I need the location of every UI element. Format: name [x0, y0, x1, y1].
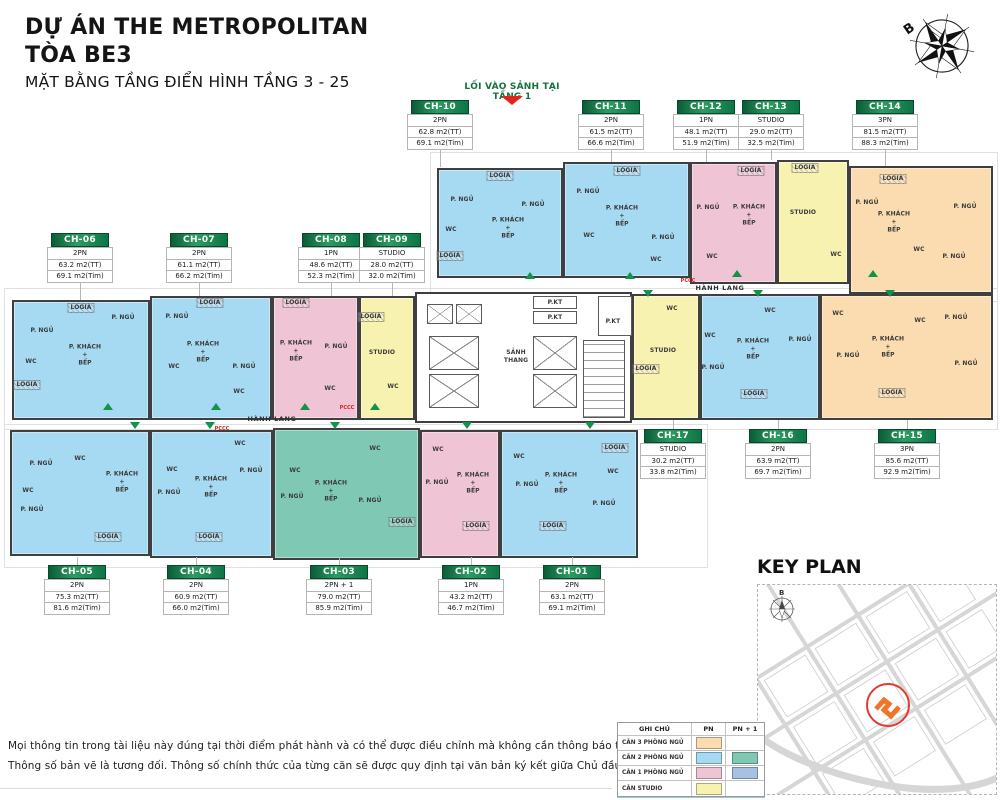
- vent-triangle-icon: [753, 290, 763, 297]
- unit-card-CH-07: CH-072PN61.1 m2(TT)66.2 m2(Tim): [166, 233, 232, 283]
- room-label: P. NGỦ: [576, 188, 599, 196]
- vent-triangle-icon: [585, 422, 595, 429]
- legend-row: CĂN STUDIO: [618, 781, 764, 796]
- room-label: LOGIA: [357, 312, 384, 322]
- elevator-box: [429, 336, 479, 370]
- vent-triangle-icon: [885, 290, 895, 297]
- vent-triangle-icon: [300, 403, 310, 410]
- card-connector-line: [907, 420, 908, 429]
- color-swatch: [696, 783, 722, 795]
- card-connector-line: [572, 557, 573, 565]
- unit-card-area-tim: 69.1 m2(Tim): [47, 271, 113, 283]
- unit-card-area-tt: 30.2 m2(TT): [640, 456, 706, 468]
- room-label: WC: [168, 363, 179, 371]
- unit-card-title: CH-13: [742, 100, 800, 114]
- legend-row-label: CĂN 3 PHÒNG NGỦ: [618, 736, 692, 751]
- room-label: WC: [914, 317, 925, 325]
- unit-card-type: 3PN: [874, 443, 940, 456]
- vent-triangle-icon: [130, 422, 140, 429]
- unit-card-type: 2PN + 1: [306, 579, 372, 592]
- room-label: P. NGỦ: [239, 467, 262, 475]
- vent-triangle-icon: [525, 272, 535, 279]
- unit-card-title: CH-04: [167, 565, 225, 579]
- room-label: WC: [650, 256, 661, 264]
- room-label: LOGIA: [462, 521, 489, 531]
- unit-card-area-tt: 60.9 m2(TT): [163, 592, 229, 604]
- legend-cell-pn1: [726, 736, 764, 751]
- room-label: P. NGỦ: [29, 460, 52, 468]
- unit-card-area-tim: 69.1 m2(Tim): [539, 603, 605, 615]
- unit-card-area-tim: 66.2 m2(Tim): [166, 271, 232, 283]
- room-label: WC: [233, 388, 244, 396]
- room-label: P. NGỦ: [425, 479, 448, 487]
- unit-card-type: STUDIO: [640, 443, 706, 456]
- room-label: P. KHÁCH + BẾP: [69, 343, 101, 366]
- unit-card-CH-04: CH-042PN60.9 m2(TT)66.0 m2(Tim): [163, 565, 229, 615]
- core-label: P.KT: [548, 314, 563, 322]
- room-label: LOGIA: [740, 389, 767, 399]
- unit-card-CH-03: CH-032PN + 179.0 m2(TT)85.9 m2(Tim): [306, 565, 372, 615]
- unit-CH-13: [777, 160, 849, 284]
- room-label: P. NGỦ: [942, 253, 965, 261]
- card-connector-line: [77, 557, 78, 565]
- disclaimer-line-1: Mọi thông tin trong tài liệu này đúng tạ…: [8, 740, 646, 752]
- elevator-box: [429, 374, 479, 408]
- unit-card-area-tim: 92.9 m2(Tim): [874, 467, 940, 479]
- room-label: P. NGỦ: [358, 497, 381, 505]
- key-plan-map: B: [758, 585, 996, 794]
- unit-card-CH-08: CH-081PN48.6 m2(TT)52.3 m2(Tim): [298, 233, 364, 283]
- unit-card-area-tt: 62.8 m2(TT): [407, 127, 473, 139]
- corridor-label: HÀNH LANG: [248, 415, 297, 423]
- room-label: WC: [166, 466, 177, 474]
- unit-card-area-tim: 46.7 m2(Tim): [438, 603, 504, 615]
- unit-card-CH-15: CH-153PN85.6 m2(TT)92.9 m2(Tim): [874, 429, 940, 479]
- unit-card-area-tim: 69.7 m2(Tim): [745, 467, 811, 479]
- unit-card-title: CH-06: [51, 233, 109, 247]
- legend-row-label: CĂN STUDIO: [618, 781, 692, 796]
- room-label: P. NGỦ: [324, 343, 347, 351]
- room-label: WC: [234, 440, 245, 448]
- vent-triangle-icon: [868, 270, 878, 277]
- elevator-box: [427, 304, 453, 324]
- room-label: P. KHÁCH + BẾP: [545, 471, 577, 494]
- unit-card-CH-02: CH-021PN43.2 m2(TT)46.7 m2(Tim): [438, 565, 504, 615]
- color-swatch: [696, 737, 722, 749]
- room-label: P. NGỦ: [855, 199, 878, 207]
- room-label: P. NGỦ: [515, 481, 538, 489]
- legend-row-label: CĂN 2 PHÒNG NGỦ: [618, 751, 692, 766]
- floor-plan-page: DỰ ÁN THE METROPOLITAN TÒA BE3 MẶT BẰNG …: [0, 0, 1000, 800]
- unit-card-type: 2PN: [539, 579, 605, 592]
- unit-card-type: 1PN: [298, 247, 364, 260]
- room-label: STUDIO: [790, 209, 816, 217]
- room-label: P. KHÁCH + BẾP: [878, 210, 910, 233]
- room-label: P. NGỦ: [157, 489, 180, 497]
- key-plan-box: B: [757, 584, 997, 795]
- room-label: P. NGỦ: [30, 327, 53, 335]
- card-connector-line: [778, 420, 779, 429]
- unit-card-area-tt: 28.0 m2(TT): [359, 260, 425, 272]
- room-label: LOGIA: [539, 521, 566, 531]
- vent-triangle-icon: [211, 403, 221, 410]
- unit-card-title: CH-08: [302, 233, 360, 247]
- unit-card-area-tt: 81.5 m2(TT): [852, 127, 918, 139]
- room-label: P. NGỦ: [521, 201, 544, 209]
- room-label: P. NGỦ: [701, 364, 724, 372]
- unit-card-area-tt: 63.9 m2(TT): [745, 456, 811, 468]
- unit-card-title: CH-17: [644, 429, 702, 443]
- room-label: WC: [706, 253, 717, 261]
- room-label: WC: [583, 232, 594, 240]
- pccc-marker: PCCC: [215, 426, 230, 432]
- room-label: WC: [513, 453, 524, 461]
- unit-card-area-tt: 79.0 m2(TT): [306, 592, 372, 604]
- unit-card-title: CH-01: [543, 565, 601, 579]
- legend-table: GHI CHÚ PN PN + 1 CĂN 3 PHÒNG NGỦCĂN 2 P…: [617, 722, 765, 797]
- room-label: P. KHÁCH + BẾP: [280, 339, 312, 362]
- room-label: P. NGỦ: [232, 363, 255, 371]
- room-label: WC: [830, 251, 841, 259]
- unit-card-type: 1PN: [673, 114, 739, 127]
- corridor-label: HÀNH LANG: [696, 284, 745, 292]
- legend-col-pn1: PN + 1: [726, 723, 764, 736]
- color-swatch: [696, 752, 722, 764]
- room-label: P. KHÁCH + BẾP: [195, 475, 227, 498]
- unit-card-CH-13: CH-13STUDIO29.0 m2(TT)32.5 m2(Tim): [738, 100, 804, 150]
- color-swatch: [732, 767, 758, 779]
- room-label: P. NGỦ: [954, 360, 977, 368]
- unit-card-CH-05: CH-052PN75.3 m2(TT)81.6 m2(Tim): [44, 565, 110, 615]
- unit-card-type: 2PN: [578, 114, 644, 127]
- room-label: LOGIA: [601, 443, 628, 453]
- technical-room: [598, 296, 632, 336]
- room-label: P. KHÁCH + BẾP: [106, 470, 138, 493]
- legend-cell-pn1: [726, 766, 764, 781]
- legend-cell-pn1: [726, 781, 764, 796]
- unit-card-area-tim: 32.5 m2(Tim): [738, 138, 804, 150]
- unit-card-CH-14: CH-143PN81.5 m2(TT)88.3 m2(Tim): [852, 100, 918, 150]
- core-label: SẢNH THANG: [504, 349, 528, 365]
- unit-card-area-tt: 29.0 m2(TT): [738, 127, 804, 139]
- unit-card-area-tim: 88.3 m2(Tim): [852, 138, 918, 150]
- room-label: P. NGỦ: [450, 196, 473, 204]
- legend-row: CĂN 3 PHÒNG NGỦ: [618, 736, 764, 751]
- vent-triangle-icon: [462, 422, 472, 429]
- unit-card-type: 3PN: [852, 114, 918, 127]
- room-label: LOGIA: [195, 532, 222, 542]
- legend-cell-pn1: [726, 751, 764, 766]
- footer-divider: [0, 788, 612, 789]
- unit-card-title: CH-15: [878, 429, 936, 443]
- vent-triangle-icon: [370, 403, 380, 410]
- room-label: P. KHÁCH + BẾP: [872, 335, 904, 358]
- room-label: P. KHÁCH + BẾP: [606, 204, 638, 227]
- room-label: STUDIO: [369, 349, 395, 357]
- unit-card-type: 2PN: [163, 579, 229, 592]
- elevator-box: [533, 374, 577, 408]
- unit-card-area-tt: 75.3 m2(TT): [44, 592, 110, 604]
- card-connector-line: [673, 420, 674, 429]
- unit-card-area-tt: 61.5 m2(TT): [578, 127, 644, 139]
- room-label: LOGIA: [613, 166, 640, 176]
- unit-card-area-tim: 81.6 m2(Tim): [44, 603, 110, 615]
- unit-card-title: CH-14: [856, 100, 914, 114]
- unit-card-area-tim: 85.9 m2(Tim): [306, 603, 372, 615]
- room-label: LOGIA: [878, 388, 905, 398]
- unit-card-area-tt: 48.1 m2(TT): [673, 127, 739, 139]
- unit-card-type: 2PN: [166, 247, 232, 260]
- room-label: WC: [369, 445, 380, 453]
- unit-card-title: CH-07: [170, 233, 228, 247]
- card-connector-line: [471, 557, 472, 565]
- pccc-marker: PCCC: [340, 405, 355, 411]
- room-label: LOGIA: [94, 532, 121, 542]
- unit-card-CH-09: CH-09STUDIO28.0 m2(TT)32.0 m2(Tim): [359, 233, 425, 283]
- room-label: P. NGỦ: [836, 352, 859, 360]
- unit-card-title: CH-02: [442, 565, 500, 579]
- room-label: WC: [74, 455, 85, 463]
- room-label: P. NGỦ: [788, 336, 811, 344]
- legend-row-label: CĂN 1 PHÒNG NGỦ: [618, 766, 692, 781]
- elevator-box: [533, 336, 577, 370]
- room-label: P. KHÁCH + BẾP: [492, 216, 524, 239]
- unit-card-area-tim: 69.1 m2(Tim): [407, 138, 473, 150]
- unit-card-title: CH-09: [363, 233, 421, 247]
- unit-card-title: CH-11: [582, 100, 640, 114]
- elevator-box: [456, 304, 482, 324]
- room-label: P. NGỦ: [944, 314, 967, 322]
- room-label: LOGIA: [196, 298, 223, 308]
- unit-card-type: 2PN: [745, 443, 811, 456]
- unit-card-type: 2PN: [47, 247, 113, 260]
- vent-triangle-icon: [205, 422, 215, 429]
- unit-card-area-tim: 66.6 m2(Tim): [578, 138, 644, 150]
- unit-card-CH-11: CH-112PN61.5 m2(TT)66.6 m2(Tim): [578, 100, 644, 150]
- room-label: WC: [289, 467, 300, 475]
- legend-row: CĂN 2 PHÒNG NGỦ: [618, 751, 764, 766]
- room-label: P. NGỦ: [651, 234, 674, 242]
- room-label: WC: [764, 307, 775, 315]
- unit-card-area-tt: 48.6 m2(TT): [298, 260, 364, 272]
- room-label: WC: [913, 246, 924, 254]
- legend-header-row: GHI CHÚ PN PN + 1: [618, 723, 764, 736]
- room-label: LOGIA: [67, 303, 94, 313]
- room-label: P. KHÁCH + BẾP: [187, 340, 219, 363]
- room-label: P. KHÁCH + BẾP: [457, 471, 489, 494]
- unit-card-type: STUDIO: [359, 247, 425, 260]
- room-label: P. NGỦ: [280, 493, 303, 501]
- unit-card-CH-16: CH-162PN63.9 m2(TT)69.7 m2(Tim): [745, 429, 811, 479]
- unit-card-CH-06: CH-062PN63.2 m2(TT)69.1 m2(Tim): [47, 233, 113, 283]
- room-label: WC: [666, 305, 677, 313]
- key-plan-title: KEY PLAN: [757, 556, 862, 578]
- room-label: P. KHÁCH + BẾP: [315, 479, 347, 502]
- unit-card-title: CH-12: [677, 100, 735, 114]
- pccc-marker: PCCC: [681, 278, 696, 284]
- room-label: LOGIA: [737, 166, 764, 176]
- room-label: P. KHÁCH + BẾP: [737, 337, 769, 360]
- color-swatch: [732, 752, 758, 764]
- room-label: P. NGỦ: [165, 313, 188, 321]
- unit-card-title: CH-16: [749, 429, 807, 443]
- room-label: LOGIA: [632, 364, 659, 374]
- unit-card-CH-10: CH-102PN62.8 m2(TT)69.1 m2(Tim): [407, 100, 473, 150]
- unit-card-area-tt: 85.6 m2(TT): [874, 456, 940, 468]
- vent-triangle-icon: [643, 290, 653, 297]
- unit-card-type: 2PN: [407, 114, 473, 127]
- highlighted-building: [876, 700, 899, 716]
- room-label: LOGIA: [388, 517, 415, 527]
- unit-card-CH-12: CH-121PN48.1 m2(TT)51.9 m2(Tim): [673, 100, 739, 150]
- legend-cell-pn: [692, 766, 726, 781]
- core-label: P.KT: [606, 318, 621, 326]
- legend-body: CĂN 3 PHÒNG NGỦCĂN 2 PHÒNG NGỦCĂN 1 PHÒN…: [618, 736, 764, 796]
- room-label: LOGIA: [791, 163, 818, 173]
- vent-triangle-icon: [625, 272, 635, 279]
- unit-card-title: CH-03: [310, 565, 368, 579]
- unit-card-area-tim: 66.0 m2(Tim): [163, 603, 229, 615]
- legend-cell-pn: [692, 781, 726, 796]
- unit-card-type: STUDIO: [738, 114, 804, 127]
- disclaimer-line-2: Thông số bản vẽ là tương đối. Thông số c…: [8, 760, 722, 772]
- legend-cell-pn: [692, 736, 726, 751]
- core-label: P.KT: [548, 299, 563, 307]
- color-swatch: [696, 767, 722, 779]
- room-label: WC: [607, 468, 618, 476]
- room-label: WC: [387, 383, 398, 391]
- legend-col-pn: PN: [692, 723, 726, 736]
- room-label: P. NGỦ: [111, 314, 134, 322]
- room-label: LOGIA: [436, 251, 463, 261]
- room-label: WC: [704, 332, 715, 340]
- staircase: [583, 340, 625, 418]
- unit-card-area-tt: 43.2 m2(TT): [438, 592, 504, 604]
- room-label: LOGIA: [486, 171, 513, 181]
- room-label: STUDIO: [650, 347, 676, 355]
- room-label: LOGIA: [879, 174, 906, 184]
- vent-triangle-icon: [103, 403, 113, 410]
- room-label: LOGIA: [13, 380, 40, 390]
- room-label: WC: [25, 358, 36, 366]
- unit-card-type: 1PN: [438, 579, 504, 592]
- unit-card-title: CH-10: [411, 100, 469, 114]
- room-label: P. KHÁCH + BẾP: [733, 203, 765, 226]
- room-label: P. NGỦ: [20, 506, 43, 514]
- room-label: WC: [324, 385, 335, 393]
- legend-title: GHI CHÚ: [618, 723, 692, 736]
- room-label: P. NGỦ: [696, 204, 719, 212]
- unit-card-CH-01: CH-012PN63.1 m2(TT)69.1 m2(Tim): [539, 565, 605, 615]
- room-label: WC: [445, 226, 456, 234]
- legend-row: CĂN 1 PHÒNG NGỦ: [618, 766, 764, 781]
- room-label: WC: [432, 446, 443, 454]
- unit-card-area-tt: 61.1 m2(TT): [166, 260, 232, 272]
- unit-card-area-tt: 63.2 m2(TT): [47, 260, 113, 272]
- unit-card-title: CH-05: [48, 565, 106, 579]
- room-label: LOGIA: [282, 298, 309, 308]
- unit-card-area-tim: 33.8 m2(Tim): [640, 467, 706, 479]
- unit-card-CH-17: CH-17STUDIO30.2 m2(TT)33.8 m2(Tim): [640, 429, 706, 479]
- room-label: WC: [832, 310, 843, 318]
- unit-card-area-tim: 51.9 m2(Tim): [673, 138, 739, 150]
- unit-card-type: 2PN: [44, 579, 110, 592]
- unit-card-area-tt: 63.1 m2(TT): [539, 592, 605, 604]
- key-plan-compass-label: B: [779, 589, 784, 597]
- unit-card-area-tim: 52.3 m2(Tim): [298, 271, 364, 283]
- room-label: WC: [22, 487, 33, 495]
- room-label: P. NGỦ: [592, 500, 615, 508]
- card-connector-line: [339, 557, 340, 565]
- vent-triangle-icon: [330, 422, 340, 429]
- card-connector-line: [196, 557, 197, 565]
- unit-card-area-tim: 32.0 m2(Tim): [359, 271, 425, 283]
- legend-cell-pn: [692, 751, 726, 766]
- vent-triangle-icon: [732, 270, 742, 277]
- room-label: P. NGỦ: [953, 203, 976, 211]
